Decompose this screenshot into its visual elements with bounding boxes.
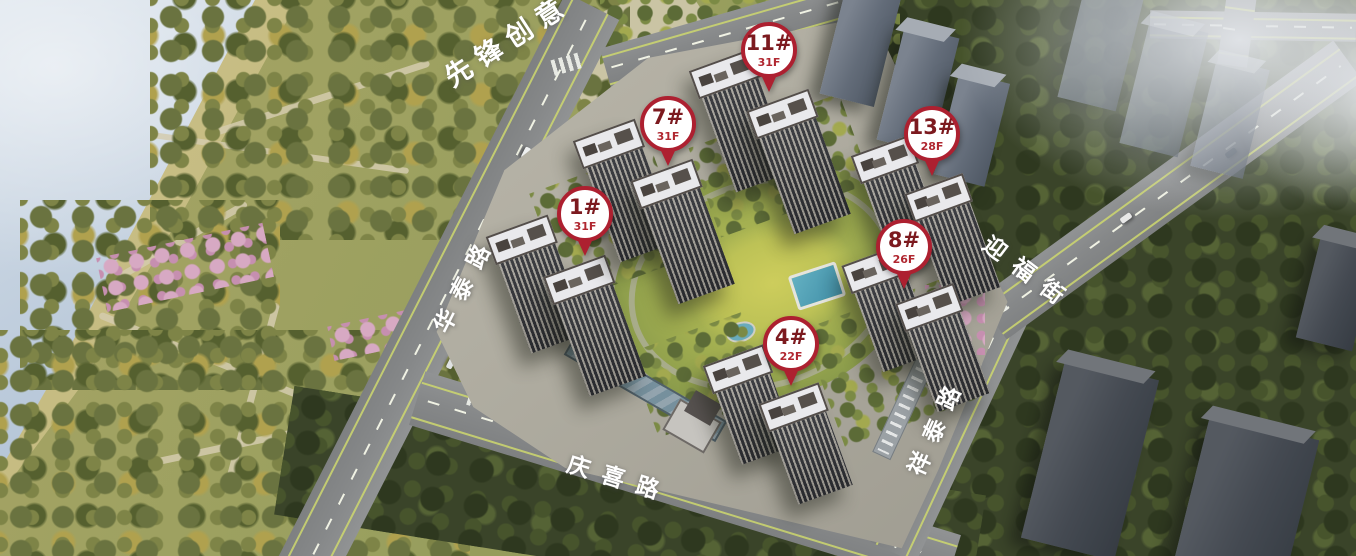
- building-floors: 22F: [780, 351, 803, 362]
- pin-head: 11# 31F: [741, 22, 797, 78]
- building-number: 13#: [909, 117, 956, 138]
- building-pin-1[interactable]: 1# 31F: [557, 186, 613, 268]
- building-pin-13[interactable]: 13# 28F: [904, 106, 960, 188]
- building-pin-7[interactable]: 7# 31F: [640, 96, 696, 178]
- building-pin-4[interactable]: 4# 22F: [763, 316, 819, 398]
- building-floors: 31F: [574, 221, 597, 232]
- pin-head: 13# 28F: [904, 106, 960, 162]
- pin-head: 7# 31F: [640, 96, 696, 152]
- building-number: 7#: [652, 107, 684, 128]
- building-floors: 26F: [893, 254, 916, 265]
- building-floors: 28F: [921, 141, 944, 152]
- pin-head: 8# 26F: [876, 219, 932, 275]
- building-floors: 31F: [758, 57, 781, 68]
- building-number: 1#: [569, 197, 601, 218]
- aerial-site-plan: 先锋创意 华泰路 庆喜路 祥泰路 迎福街 1# 31F 7# 31F 11# 3…: [0, 0, 1356, 556]
- building-number: 4#: [775, 327, 807, 348]
- building-number: 8#: [888, 230, 920, 251]
- building-pin-11[interactable]: 11# 31F: [741, 22, 797, 104]
- building-pin-8[interactable]: 8# 26F: [876, 219, 932, 301]
- building-floors: 31F: [657, 131, 680, 142]
- pin-head: 1# 31F: [557, 186, 613, 242]
- pin-head: 4# 22F: [763, 316, 819, 372]
- building-number: 11#: [746, 33, 793, 54]
